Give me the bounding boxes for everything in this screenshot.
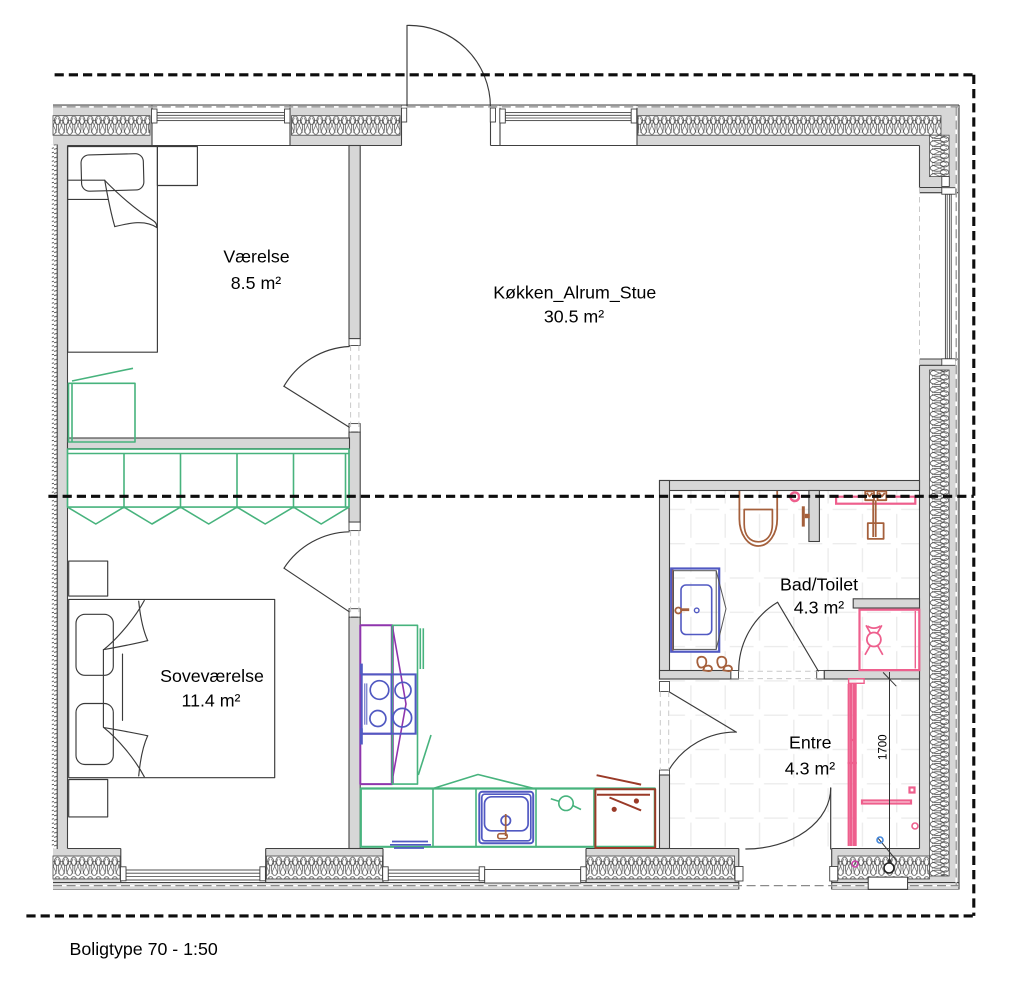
svg-text:8.5 m²: 8.5 m² bbox=[231, 273, 281, 293]
svg-text:Køkken_Alrum_Stue: Køkken_Alrum_Stue bbox=[493, 283, 656, 304]
svg-text:Entre: Entre bbox=[789, 733, 832, 753]
svg-text:Boligtype 70 - 1:50: Boligtype 70 - 1:50 bbox=[70, 939, 218, 959]
svg-text:Soveværelse: Soveværelse bbox=[160, 666, 264, 686]
svg-text:Bad/Toilet: Bad/Toilet bbox=[780, 575, 858, 595]
svg-text:1700: 1700 bbox=[878, 734, 890, 760]
svg-text:30.5 m²: 30.5 m² bbox=[544, 307, 604, 327]
svg-text:4.3 m²: 4.3 m² bbox=[785, 759, 835, 779]
svg-text:11.4 m²: 11.4 m² bbox=[182, 691, 241, 711]
svg-text:Værelse: Værelse bbox=[223, 247, 289, 267]
svg-text:4.3 m²: 4.3 m² bbox=[794, 598, 844, 618]
